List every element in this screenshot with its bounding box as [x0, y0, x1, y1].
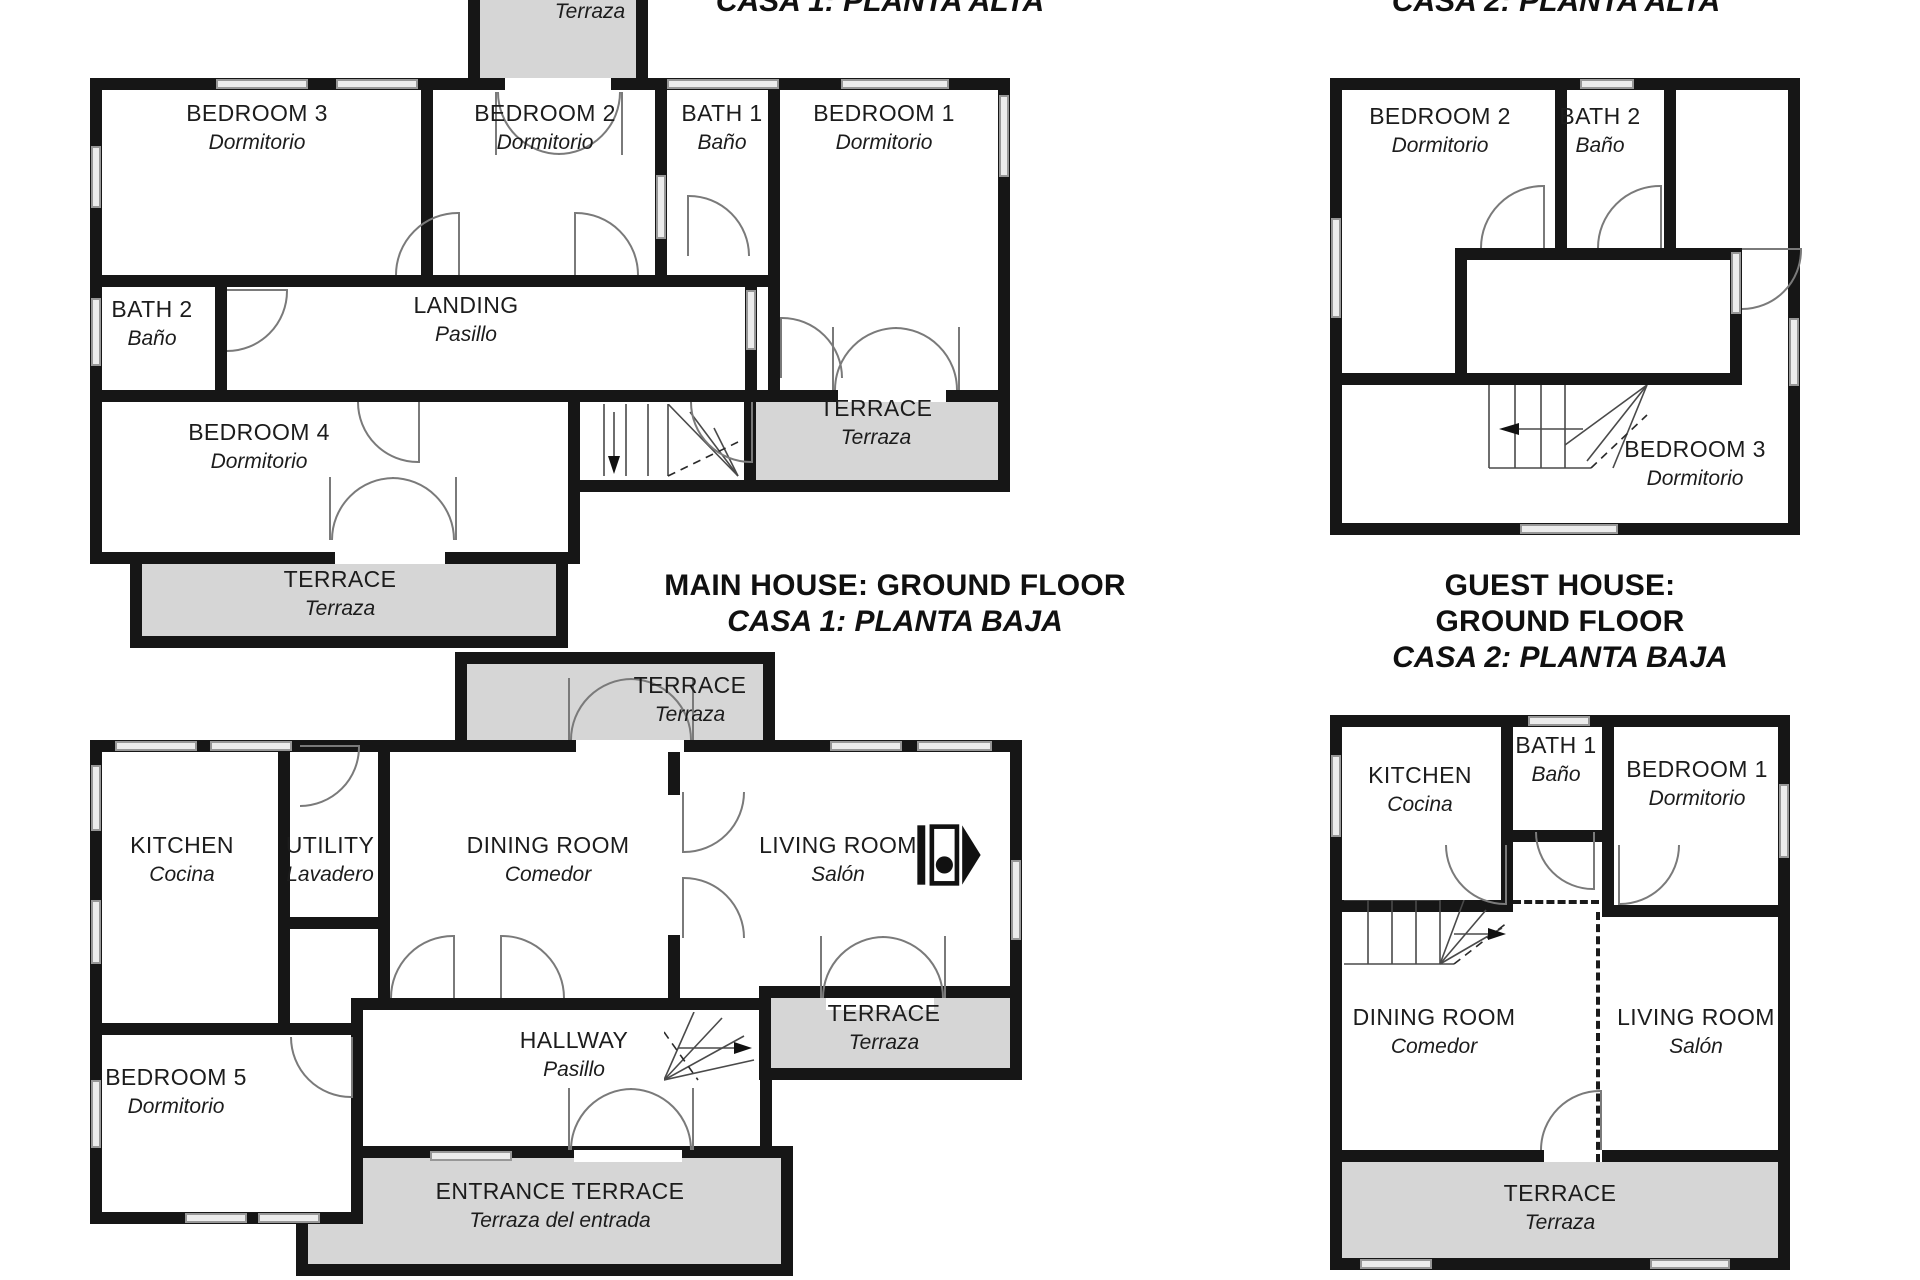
partition-dashed [1513, 900, 1599, 904]
door-swing-icon [395, 212, 460, 275]
window-icon [336, 79, 418, 89]
label-bath1: BATH 1 Baño [681, 100, 762, 156]
title-guest-ground-es: CASA 2: PLANTA BAJA [1380, 640, 1740, 676]
door-swing-icon [682, 877, 745, 938]
door-swing-icon [1597, 185, 1662, 248]
window-icon [1650, 1259, 1730, 1269]
label-terrace-top-main-upper: Terraza [555, 0, 625, 25]
label-dining-main-ground: DINING ROOM Comedor [467, 832, 630, 888]
window-icon [115, 741, 197, 751]
window-icon [746, 290, 756, 350]
window-icon [91, 765, 101, 831]
label-utility-main-ground: UTILITY Lavadero [286, 832, 374, 888]
door-swing-icon [832, 327, 897, 390]
door-swing-icon [227, 289, 288, 352]
door-swing-icon [687, 195, 750, 256]
label-bedroom4: BEDROOM 4 Dormitorio [188, 419, 330, 475]
label-bedroom1-guest-ground: BEDROOM 1 Dormitorio [1626, 756, 1768, 812]
window-icon [1520, 524, 1618, 534]
label-bath2: BATH 2 Baño [111, 296, 192, 352]
title-main-ground: MAIN HOUSE: GROUND FLOOR CASA 1: PLANTA … [664, 568, 1125, 640]
label-bedroom3: BEDROOM 3 Dormitorio [186, 100, 328, 156]
window-icon [1360, 1259, 1432, 1269]
window-icon [999, 95, 1009, 177]
door-opening [668, 795, 680, 935]
label-bedroom1: BEDROOM 1 Dormitorio [813, 100, 955, 156]
window-icon [91, 298, 101, 366]
door-swing-icon [568, 678, 632, 740]
door-swing-icon [1535, 832, 1595, 890]
window-icon [91, 146, 101, 208]
window-icon [430, 1151, 512, 1161]
door-swing-icon [390, 935, 455, 998]
stairs-icon-guest-ground [1344, 900, 1510, 966]
title-guest-ground-en: GUEST HOUSE: GROUND FLOOR [1380, 568, 1740, 640]
door-swing-icon [1480, 185, 1545, 248]
title-main-ground-en: MAIN HOUSE: GROUND FLOOR [664, 568, 1125, 604]
window-icon [1779, 784, 1789, 858]
door-swing-icon [290, 1037, 353, 1098]
title-guest-ground: GUEST HOUSE: GROUND FLOOR CASA 2: PLANTA… [1380, 568, 1740, 676]
label-bedroom5-main-ground: BEDROOM 5 Dormitorio [105, 1064, 247, 1120]
window-icon [210, 741, 292, 751]
window-icon [1528, 716, 1590, 726]
window-icon [1331, 218, 1341, 318]
label-bedroom2: BEDROOM 2 Dormitorio [474, 100, 616, 156]
label-kitchen-main-ground: KITCHEN Cocina [130, 832, 234, 888]
label-living-main-ground: LIVING ROOM Salón [759, 832, 917, 888]
door-swing-icon [574, 212, 639, 275]
window-icon [1789, 318, 1799, 386]
label-bedroom2-guest: BEDROOM 2 Dormitorio [1369, 103, 1511, 159]
stairs-icon-main-ground [664, 1012, 756, 1082]
wall-under-stairs [580, 480, 756, 492]
window-icon [1580, 79, 1634, 89]
label-terrace-right-main-upper: TERRACE Terraza [820, 395, 933, 451]
label-bedroom3-guest: BEDROOM 3 Dormitorio [1624, 436, 1766, 492]
door-swing-icon [357, 402, 420, 463]
title-main-ground-es: CASA 1: PLANTA BAJA [664, 604, 1125, 640]
door-swing-icon [568, 1088, 632, 1150]
window-icon [1731, 252, 1741, 314]
label-terrace-bottom-main-upper: TERRACE Terraza [284, 566, 397, 622]
door-opening [574, 1150, 682, 1162]
label-dining-guest-ground: DINING ROOM Comedor [1353, 1004, 1516, 1060]
room-floor [1467, 260, 1730, 373]
label-bath2-guest: BATH 2 Baño [1559, 103, 1640, 159]
door-swing-icon [392, 477, 457, 540]
title-main-upper-es: CASA 1: PLANTA ALTA [716, 0, 1044, 20]
door-swing-icon [1540, 1090, 1602, 1150]
door-opening [576, 740, 684, 752]
door-swing-icon [690, 402, 753, 463]
window-icon [258, 1213, 320, 1223]
door-swing-icon [1742, 248, 1802, 310]
label-hallway-main-ground: HALLWAY Pasillo [520, 1027, 628, 1083]
window-icon [185, 1213, 247, 1223]
door-swing-icon [500, 935, 565, 998]
door-opening [335, 552, 445, 564]
label-living-guest-ground: LIVING ROOM Salón [1617, 1004, 1775, 1060]
label-terrace-top-main-ground: TERRACE Terraza [634, 672, 747, 728]
door-swing-icon [682, 792, 745, 853]
door-swing-icon [882, 936, 946, 998]
window-icon [216, 79, 308, 89]
door-swing-icon [329, 477, 394, 540]
label-entrance-terrace-main-ground: ENTRANCE TERRACE Terraza del entrada [436, 1178, 685, 1234]
room-hall-guest-upper [1455, 248, 1742, 385]
door-swing-icon [1445, 845, 1507, 905]
door-swing-icon [895, 327, 960, 390]
label-kitchen-guest-ground: KITCHEN Cocina [1368, 762, 1472, 818]
title-guest-upper-es: CASA 2: PLANTA ALTA [1392, 0, 1720, 20]
window-icon [91, 900, 101, 964]
window-icon [667, 79, 779, 89]
door-swing-icon [300, 745, 360, 807]
window-icon [830, 741, 902, 751]
label-landing: LANDING Pasillo [413, 292, 518, 348]
window-icon [91, 1080, 101, 1148]
door-swing-icon [1618, 845, 1680, 905]
window-icon [917, 741, 992, 751]
window-icon [841, 79, 949, 89]
window-icon [1011, 860, 1021, 940]
floor-plan-sheet: CASA 1: PLANTA ALTA CASA 2: PLANTA ALTA … [0, 0, 1920, 1280]
door-swing-icon [820, 936, 884, 998]
window-icon [1331, 755, 1341, 837]
title-main-upper: CASA 1: PLANTA ALTA [716, 0, 1044, 20]
window-icon [656, 175, 666, 239]
door-opening [505, 78, 611, 90]
door-opening [1544, 1150, 1602, 1162]
label-bath1-guest-ground: BATH 1 Baño [1515, 732, 1596, 788]
label-terrace-right-main-ground: TERRACE Terraza [828, 1000, 941, 1056]
door-swing-icon [630, 1088, 694, 1150]
title-guest-upper: CASA 2: PLANTA ALTA [1392, 0, 1720, 20]
label-terrace-guest-ground: TERRACE Terraza [1504, 1180, 1617, 1236]
fireplace-icon [916, 824, 982, 886]
